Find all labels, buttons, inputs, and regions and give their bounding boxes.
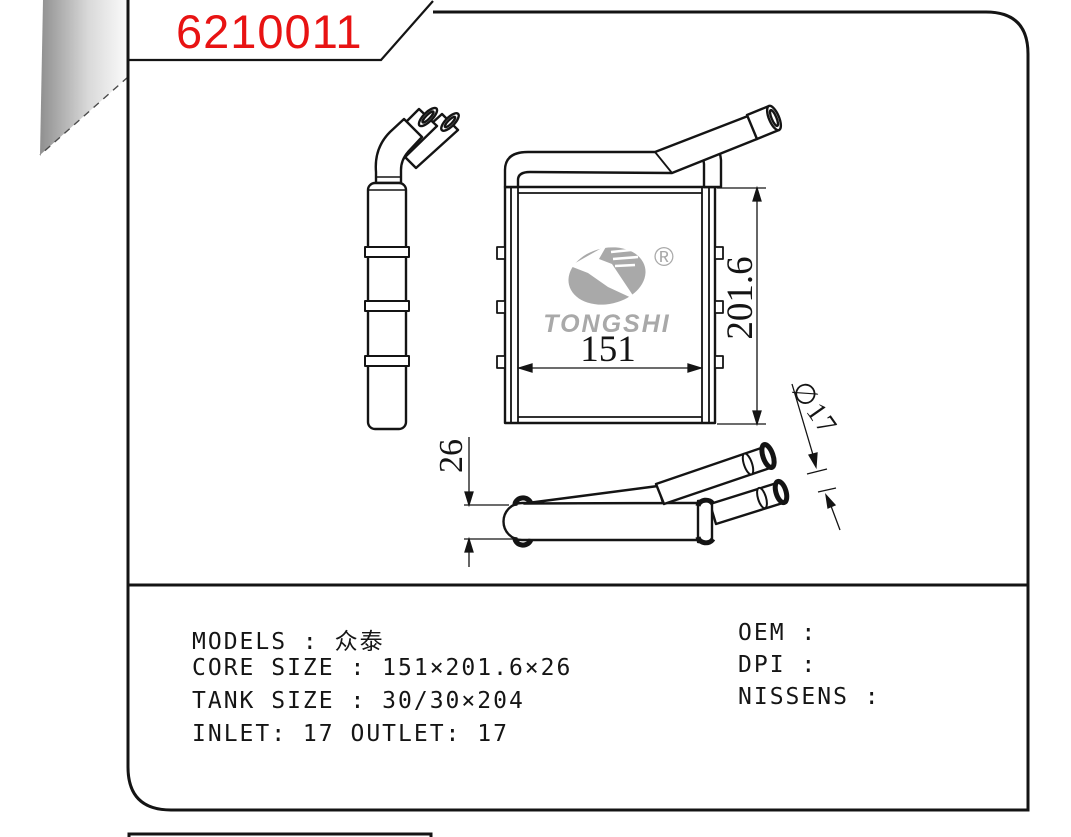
dim-depth-label: 26: [433, 439, 470, 473]
drawing-sheet: ® TONGSHI: [0, 0, 1071, 837]
side-view: [365, 105, 461, 429]
registered-mark: ®: [654, 242, 674, 272]
dim-pipe-diameter-label: ∅17: [785, 376, 844, 442]
spec-tank-size: TANK SIZE : 30/30×204: [192, 688, 525, 714]
corner-fold: [40, 0, 128, 155]
spec-dpi: DPI :: [738, 652, 817, 678]
spec-core-size: CORE SIZE : 151×201.6×26: [192, 655, 572, 681]
dim-height-label: 201.6: [720, 256, 761, 339]
part-number: 6210011: [176, 4, 426, 59]
bottom-view: [504, 443, 789, 545]
spec-models: MODELS : 众泰: [192, 622, 385, 656]
spec-inlet-outlet: INLET: 17 OUTLET: 17: [192, 721, 509, 747]
dim-width-label: 151: [580, 329, 636, 370]
spec-oem: OEM :: [738, 620, 817, 646]
technical-drawing-svg: ® TONGSHI: [0, 0, 1071, 837]
spec-nissens: NISSENS :: [738, 684, 881, 710]
